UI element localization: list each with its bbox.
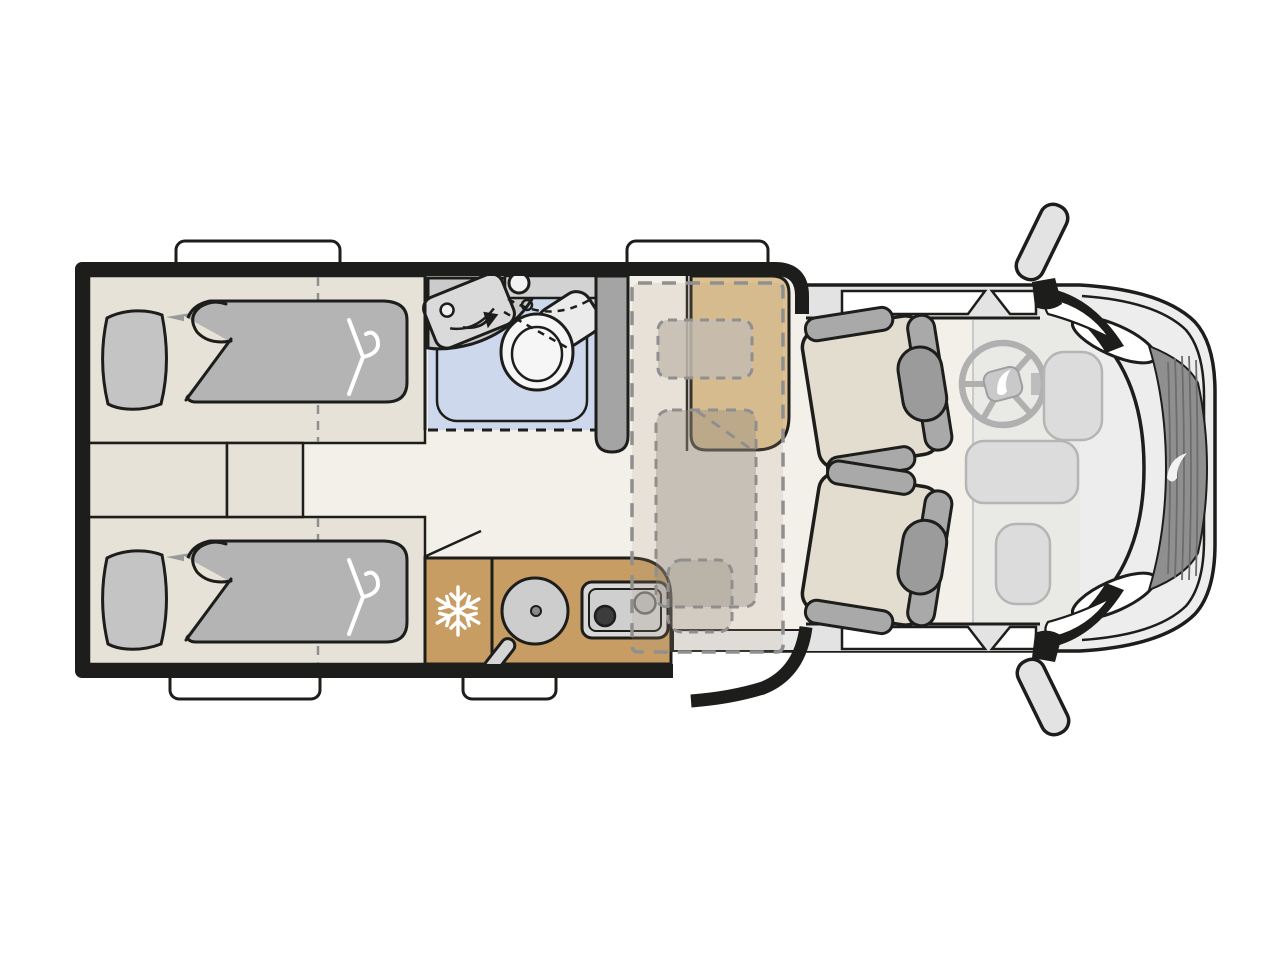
bed-step-cabinet-small — [227, 443, 303, 517]
floorplan-canvas — [0, 0, 1280, 960]
stove-burner-left — [595, 606, 615, 626]
lower-console — [996, 524, 1050, 604]
bed-step-cabinet-large — [89, 443, 227, 517]
wardrobe-pillar — [596, 276, 628, 452]
bathroom — [420, 270, 628, 452]
single-bed-top — [103, 301, 407, 409]
single-bed-bottom — [103, 541, 407, 649]
center-console — [966, 441, 1078, 503]
sink-drain — [531, 606, 541, 616]
dashboard-panel-right — [1044, 352, 1102, 440]
drop-down-bed-inner-panel — [668, 560, 732, 632]
drop-down-bed — [632, 283, 783, 652]
floorplan-drawing — [0, 0, 1280, 960]
drop-down-bed-pillow — [658, 320, 752, 378]
